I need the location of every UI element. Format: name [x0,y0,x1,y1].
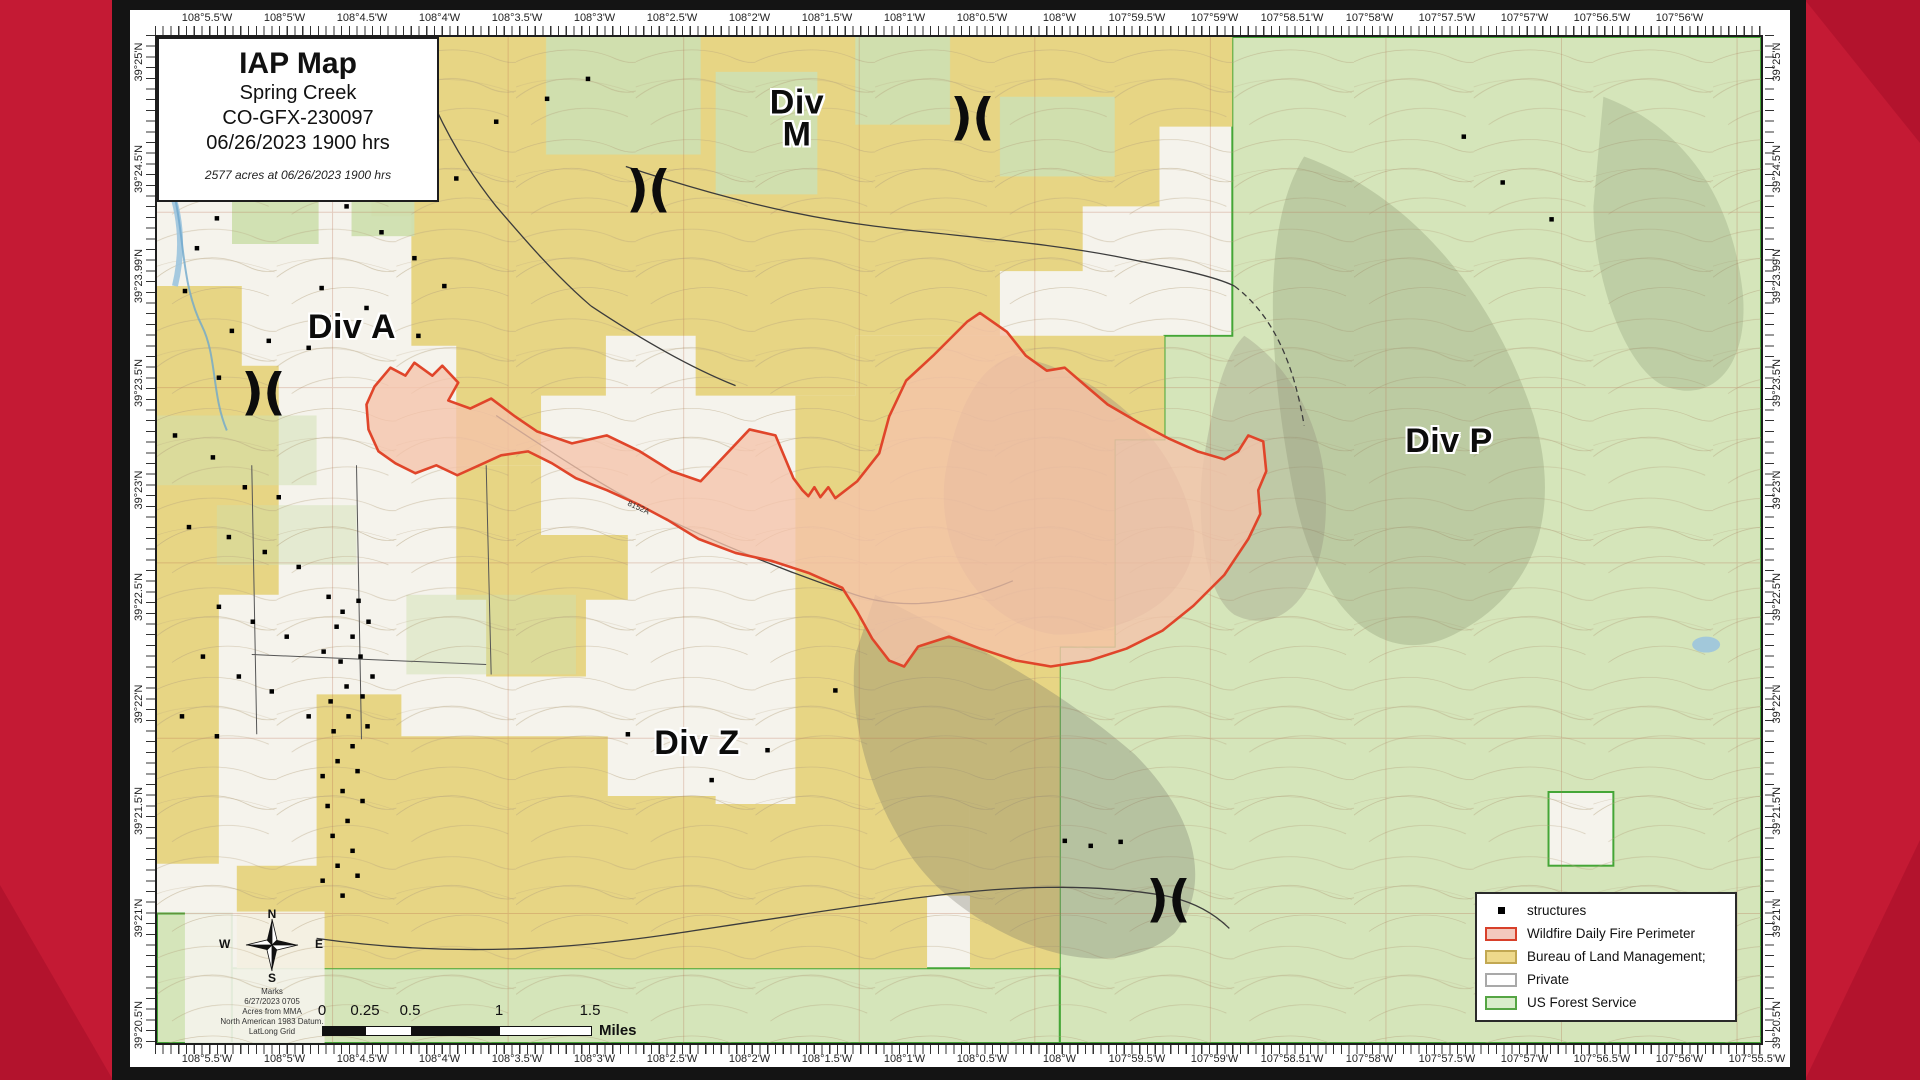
structure-marker [545,97,549,101]
structure-marker [227,535,231,539]
structure-marker [326,595,330,599]
latitude-label: 39°21.5'N [1771,787,1783,835]
longitude-label: 107°58'W [1346,12,1393,24]
longitude-label: 108°4'W [419,1053,460,1065]
structure-marker [277,495,281,499]
structure-marker [340,610,344,614]
longitude-label: 107°59'W [1191,12,1238,24]
structure-marker [334,624,338,628]
structure-marker [350,744,354,748]
structure-marker [320,774,324,778]
longitude-label: 107°58.51'W [1261,12,1324,24]
longitude-label: 107°56.5'W [1574,1053,1631,1065]
latitude-label: 39°22'N [1771,685,1783,724]
scale-tick-label: 1 [495,1002,503,1019]
latitude-label: 39°23'N [1771,471,1783,510]
longitude-label: 107°56.5'W [1574,12,1631,24]
structure-marker [586,77,590,81]
background-accent-shape [1805,780,1920,1080]
longitude-label: 108°1'W [884,12,925,24]
longitude-label: 108°5'W [264,1053,305,1065]
branch-break-symbol: )( [626,160,670,218]
longitude-label: 108°5.5'W [182,12,233,24]
structure-marker [335,759,339,763]
scale-tick-label: 0.25 [350,1002,379,1019]
topographic-map: IAP Map Spring Creek CO-GFX-230097 06/26… [155,35,1763,1045]
longitude-label: 108°1.5'W [802,1053,853,1065]
longitude-label: 108°1'W [884,1053,925,1065]
scale-bar-unit: Miles [599,1022,637,1039]
longitude-label: 107°59.5'W [1109,1053,1166,1065]
legend-item-label: Wildfire Daily Fire Perimeter [1527,926,1695,941]
structure-marker [320,878,324,882]
structure-marker [1088,844,1092,848]
longitude-label: 108°4.5'W [337,1053,388,1065]
legend-item-label: Bureau of Land Management; [1527,949,1706,964]
structure-marker [217,605,221,609]
longitude-label: 107°55.5'W [1729,1053,1786,1065]
legend-item: structures [1485,899,1727,922]
compass-east: E [315,937,323,951]
longitude-label: 107°56'W [1656,1053,1703,1065]
scale-bar: 00.250.511.5 Miles [307,1002,667,1048]
division-label: DivM [770,87,824,152]
structure-marker [765,748,769,752]
longitude-label: 108°4'W [419,12,460,24]
structure-marker [454,176,458,180]
longitude-label: 108°W [1043,1053,1076,1065]
structure-marker [350,634,354,638]
structure-marker [1118,840,1122,844]
longitude-label: 108°2.5'W [647,1053,698,1065]
latitude-label: 39°21.5'N [133,787,145,835]
structure-marker [626,732,630,736]
longitude-label: 107°58'W [1346,1053,1393,1065]
scale-tick-label: 1.5 [580,1002,601,1019]
latitude-label: 39°22'N [133,685,145,724]
legend-item-label: Private [1527,972,1569,987]
structure-marker [1549,217,1553,221]
compass-west: W [219,937,230,951]
structure-marker [355,873,359,877]
structure-marker [350,849,354,853]
structure-marker [330,834,334,838]
latitude-label: 39°24.5'N [133,145,145,193]
structure-marker [328,699,332,703]
structure-marker [1500,180,1504,184]
structure-marker [183,289,187,293]
background-accent-shape [1805,0,1920,260]
left-tick-marks [146,35,155,1045]
top-tick-marks [155,26,1763,35]
structure-marker [344,204,348,208]
structure-marker [338,659,342,663]
structure-marker [365,724,369,728]
structure-marker [215,216,219,220]
map-title-box: IAP Map Spring Creek CO-GFX-230097 06/26… [157,37,439,202]
longitude-label: 108°2'W [729,12,770,24]
structure-marker [237,674,241,678]
structure-marker [251,619,255,623]
longitude-label: 107°58.51'W [1261,1053,1324,1065]
map-title: IAP Map [159,47,437,81]
map-datetime: 06/26/2023 1900 hrs [159,131,437,156]
legend-swatch [1485,996,1517,1010]
structure-marker [1063,839,1067,843]
structure-marker [243,485,247,489]
structure-marker [360,694,364,698]
structure-marker [355,769,359,773]
structure-marker [358,654,362,658]
latitude-label: 39°25'N [1771,43,1783,82]
structure-marker [306,346,310,350]
structure-marker [366,619,370,623]
structure-marker [360,799,364,803]
legend-item-label: structures [1527,903,1586,918]
longitude-label: 108°0.5'W [957,1053,1008,1065]
compass-south: S [268,971,276,985]
longitude-label: 108°3.5'W [492,1053,543,1065]
legend-swatch [1485,950,1517,964]
structure-marker [187,525,191,529]
latitude-label: 39°22.5'N [1771,573,1783,621]
branch-break-symbol: )( [1146,870,1190,928]
longitude-label: 108°3'W [574,1053,615,1065]
structure-marker [833,688,837,692]
map-legend: structuresWildfire Daily Fire PerimeterB… [1475,892,1737,1022]
latitude-label: 39°23.5'N [1771,359,1783,407]
structure-marker [284,634,288,638]
scale-tick-label: 0.5 [400,1002,421,1019]
structure-marker [335,864,339,868]
structure-marker [442,284,446,288]
structure-marker [267,339,271,343]
compass-star-icon [244,917,300,973]
longitude-label: 108°0.5'W [957,12,1008,24]
legend-item-label: US Forest Service [1527,995,1637,1010]
structure-marker [201,654,205,658]
map-page: 108°5.5'W108°5'W108°4.5'W108°4'W108°3.5'… [130,10,1790,1067]
latitude-label: 39°20.5'N [133,1001,145,1049]
structure-marker [263,550,267,554]
acreage-note: 2577 acres at 06/26/2023 1900 hrs [159,168,437,182]
structure-marker [340,789,344,793]
structure-marker [215,734,219,738]
structure-swatch-icon [1485,907,1517,914]
structure-marker [379,230,383,234]
latitude-label: 39°24.5'N [1771,145,1783,193]
latitude-label: 39°23.5'N [133,359,145,407]
division-label: Div Z [654,727,740,759]
longitude-label: 107°57.5'W [1419,12,1476,24]
longitude-label: 107°57.5'W [1419,1053,1476,1065]
structure-marker [180,714,184,718]
structure-marker [211,455,215,459]
structure-marker [325,804,329,808]
structure-marker [1462,134,1466,138]
structure-marker [331,729,335,733]
structure-marker [270,689,274,693]
longitude-label: 107°59'W [1191,1053,1238,1065]
longitude-label: 108°5'W [264,12,305,24]
structure-marker [345,819,349,823]
branch-break-symbol: )( [950,88,994,146]
structure-marker [494,119,498,123]
longitude-label: 108°2'W [729,1053,770,1065]
longitude-label: 107°56'W [1656,12,1703,24]
legend-swatch [1485,927,1517,941]
latitude-label: 39°25'N [133,43,145,82]
latitude-label: 39°23.99'N [133,249,145,303]
latitude-label: 39°21'N [1771,899,1783,938]
structure-marker [356,599,360,603]
longitude-label: 108°3.5'W [492,12,543,24]
structure-marker [173,433,177,437]
structure-marker [321,649,325,653]
division-label: Div A [308,311,396,343]
structure-marker [217,375,221,379]
incident-number: CO-GFX-230097 [159,106,437,131]
structure-marker [340,893,344,897]
legend-item: US Forest Service [1485,991,1727,1014]
background-accent-shape [0,780,113,1080]
longitude-label: 108°W [1043,12,1076,24]
latitude-label: 39°20.5'N [1771,1001,1783,1049]
longitude-label: 108°5.5'W [182,1053,233,1065]
longitude-label: 107°59.5'W [1109,12,1166,24]
structure-marker [306,714,310,718]
longitude-label: 108°4.5'W [337,12,388,24]
legend-item: Wildfire Daily Fire Perimeter [1485,922,1727,945]
longitude-label: 108°2.5'W [647,12,698,24]
structure-marker [709,778,713,782]
scale-tick-label: 0 [318,1002,326,1019]
structure-marker [416,334,420,338]
legend-item: Private [1485,968,1727,991]
branch-break-symbol: )( [241,363,285,421]
structure-marker [230,329,234,333]
division-label: Div P [1405,425,1493,457]
structure-marker [296,565,300,569]
incident-name: Spring Creek [159,81,437,106]
legend-swatch [1485,973,1517,987]
legend-item: Bureau of Land Management; [1485,945,1727,968]
longitude-label: 108°1.5'W [802,12,853,24]
longitude-label: 107°57'W [1501,12,1548,24]
longitude-label: 108°3'W [574,12,615,24]
news-background: 108°5.5'W108°5'W108°4.5'W108°4'W108°3.5'… [0,0,1920,1080]
structure-marker [346,714,350,718]
longitude-label: 107°57'W [1501,1053,1548,1065]
latitude-label: 39°22.5'N [133,573,145,621]
latitude-label: 39°23'N [133,471,145,510]
structure-marker [344,684,348,688]
latitude-label: 39°21'N [133,899,145,938]
structure-marker [195,246,199,250]
latitude-label: 39°23.99'N [1771,249,1783,303]
structure-marker [319,286,323,290]
scale-bar-track [322,1026,592,1036]
structure-marker [412,256,416,260]
structure-marker [370,674,374,678]
